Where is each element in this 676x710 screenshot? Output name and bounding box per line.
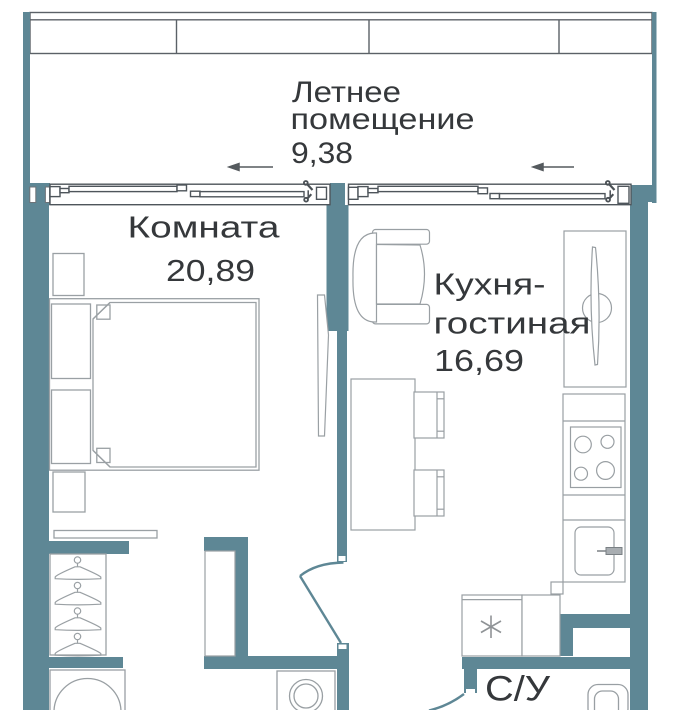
svg-text:9,38: 9,38 — [291, 137, 353, 170]
svg-text:Комната: Комната — [128, 210, 281, 245]
svg-text:16,69: 16,69 — [434, 343, 524, 378]
svg-text:С/У: С/У — [485, 670, 551, 709]
svg-text:помещение: помещение — [291, 103, 475, 136]
svg-text:20,89: 20,89 — [166, 253, 255, 288]
svg-text:Кухня-: Кухня- — [434, 267, 546, 302]
svg-text:гостиная: гостиная — [434, 306, 591, 341]
